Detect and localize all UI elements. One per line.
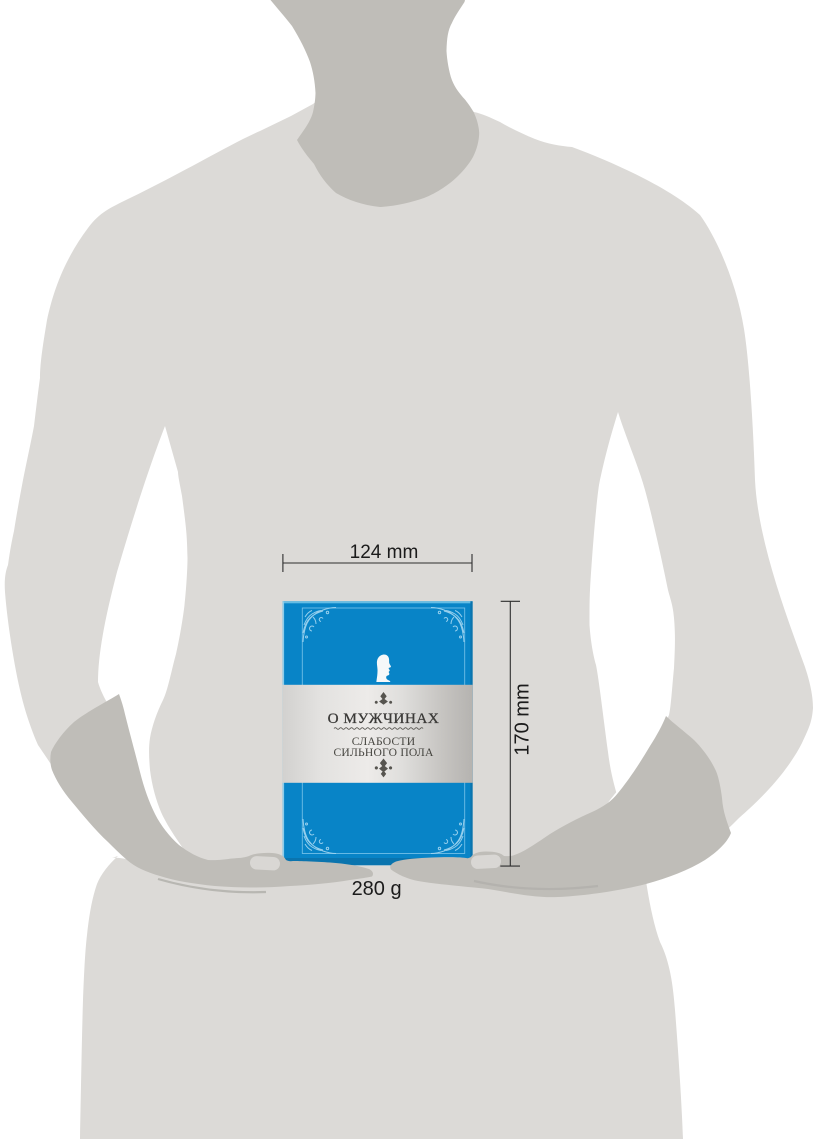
svg-text:170 mm: 170 mm xyxy=(512,683,534,755)
svg-text:124 mm: 124 mm xyxy=(350,542,419,563)
svg-text:СИЛЬНОГО ПОЛА: СИЛЬНОГО ПОЛА xyxy=(333,746,433,759)
svg-text:280 g: 280 g xyxy=(352,878,402,900)
svg-text:О МУЖЧИНАХ: О МУЖЧИНАХ xyxy=(328,710,440,727)
